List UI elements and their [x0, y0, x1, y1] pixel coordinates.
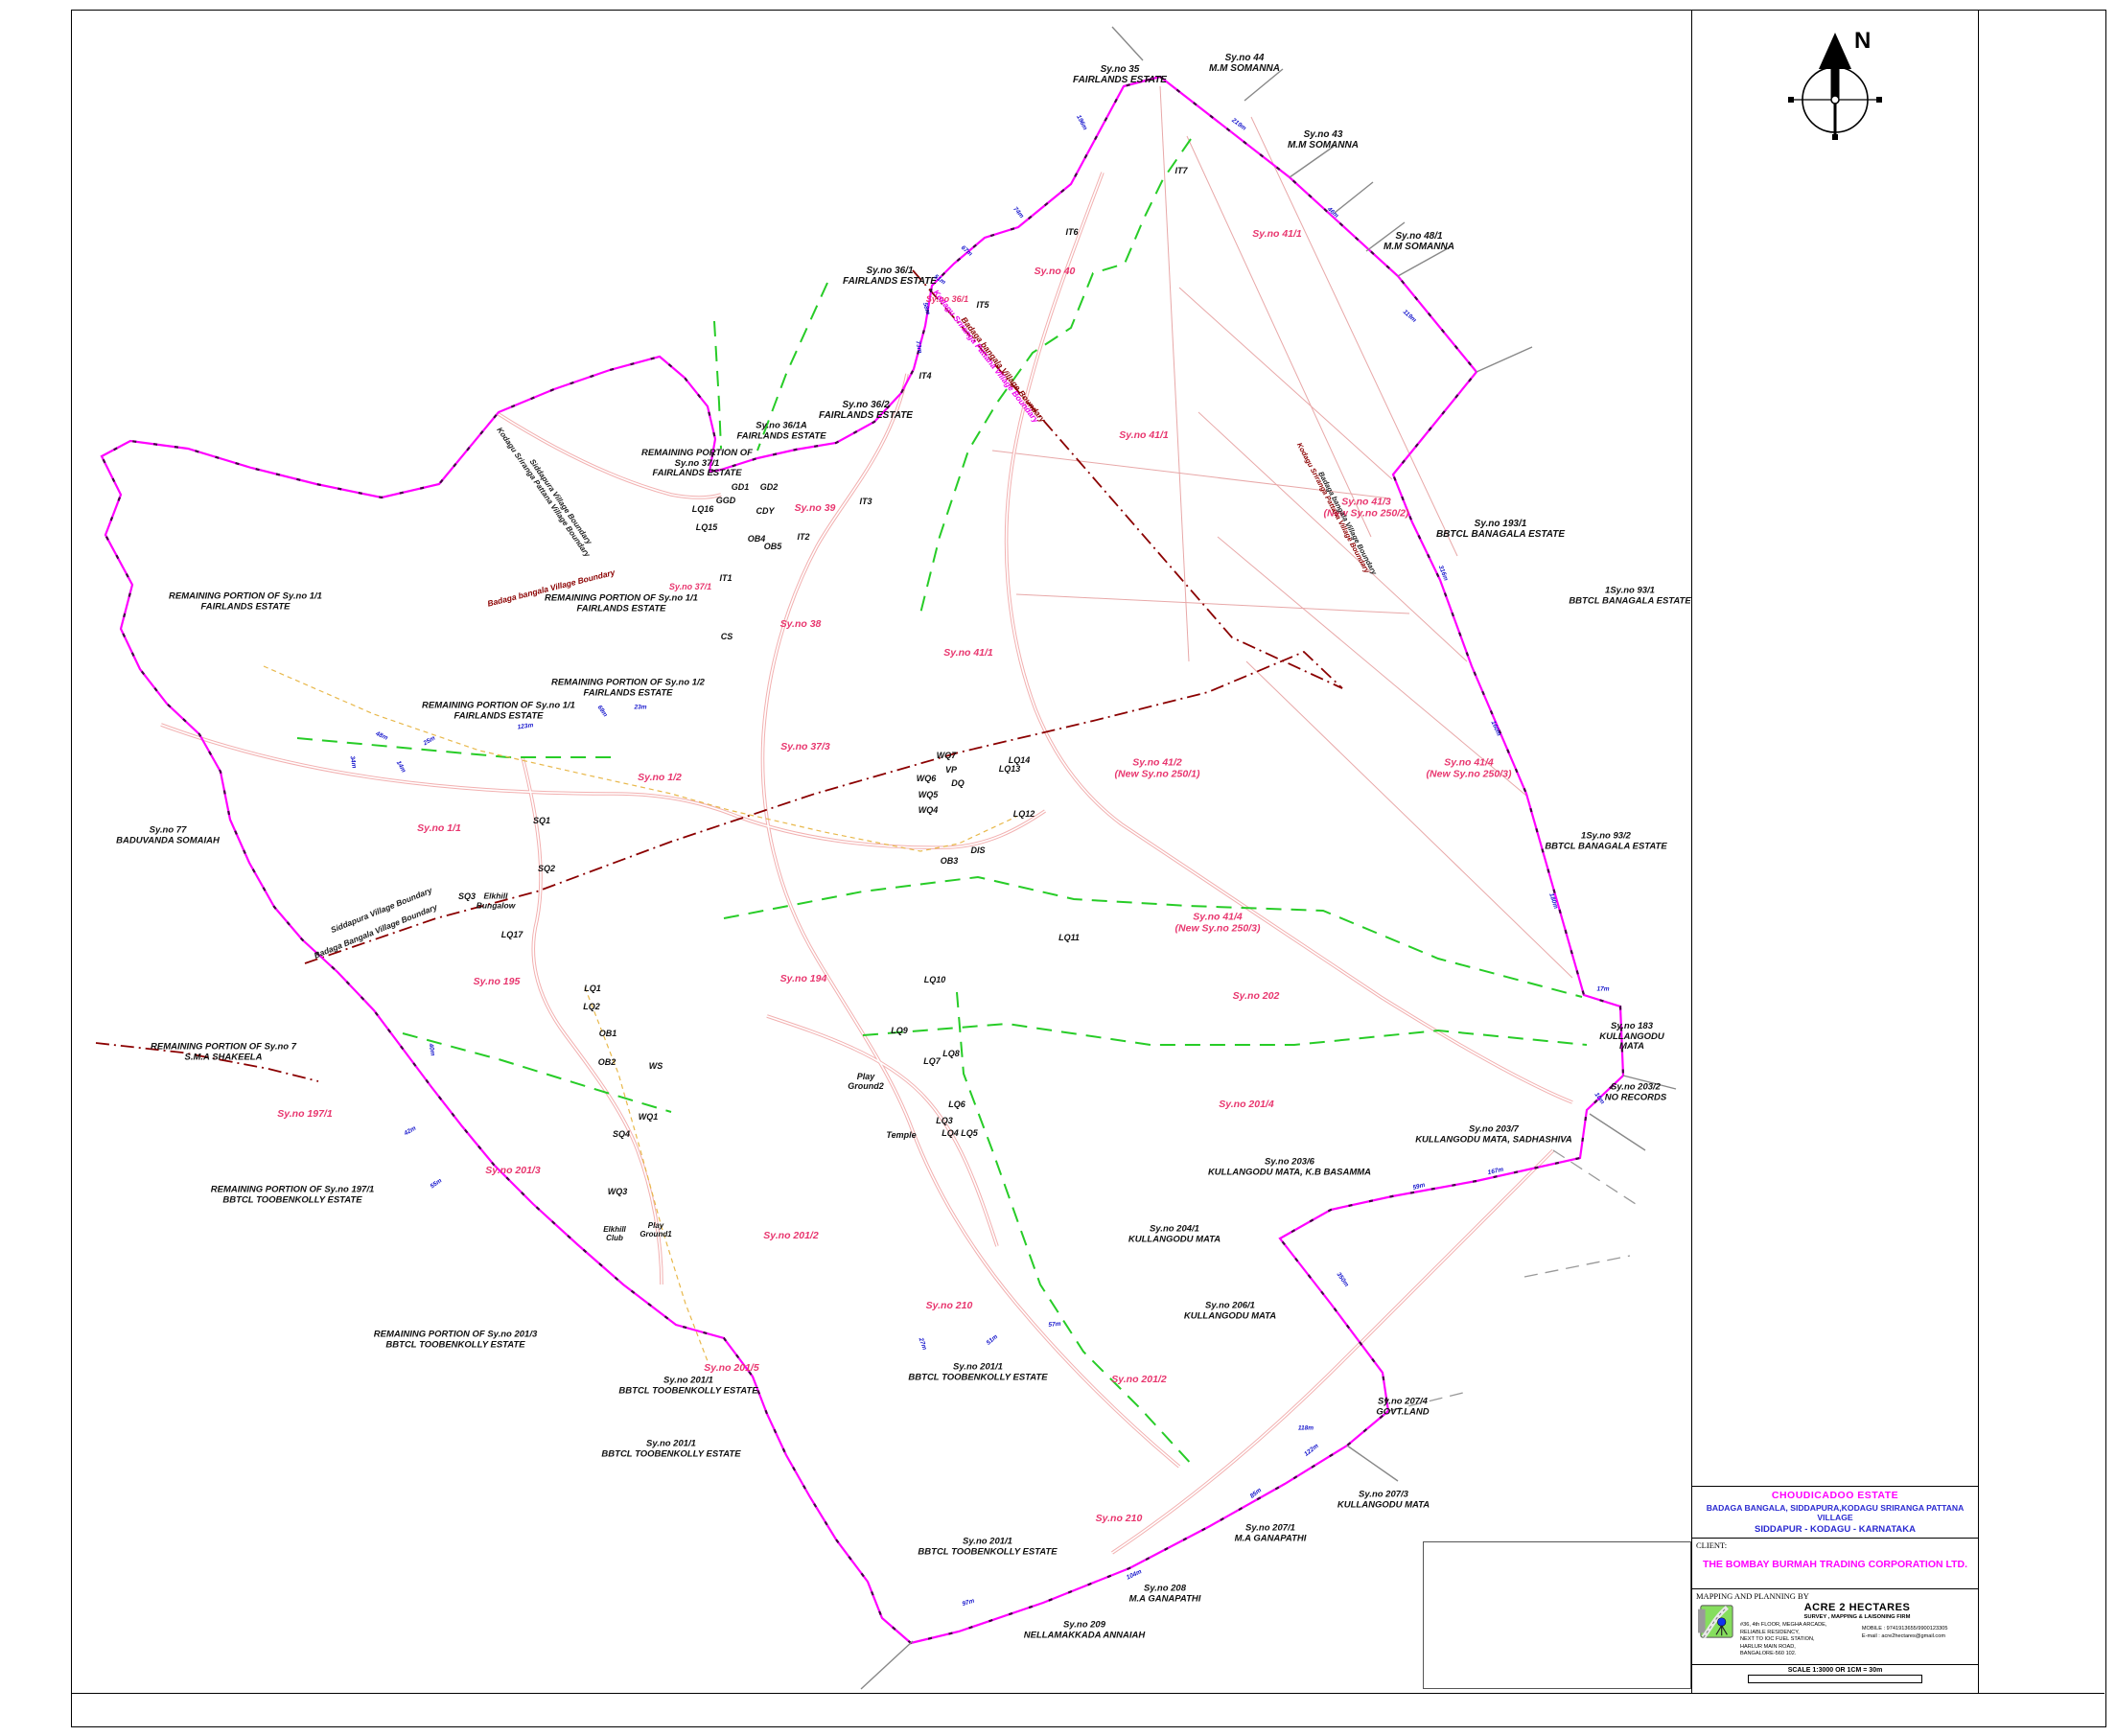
survey-map-sheet: Sy.no 35 FAIRLANDS ESTATESy.no 44 M.M SO…: [0, 0, 2116, 1736]
firm-logo: [1698, 1604, 1734, 1640]
scale-text: SCALE 1:3000 OR 1CM = 30m: [1692, 1665, 1978, 1674]
title-block: CHOUDICADOO ESTATE BADAGA BANGALA, SIDDA…: [1692, 1486, 1978, 1694]
mapping-label: MAPPING AND PLANNING BY: [1692, 1589, 1978, 1601]
estate-location: SIDDAPUR - KODAGU - KARNATAKA: [1692, 1524, 1978, 1535]
firm-contact: MOBILE : 9741913655/9900123305 E-mail : …: [1862, 1622, 1974, 1658]
svg-text:N: N: [1854, 28, 1871, 54]
legend: [1423, 1541, 1691, 1689]
survey-boundaries: [297, 139, 1587, 1467]
bottom-rule: [71, 1693, 2104, 1694]
external-survey-lines: [861, 27, 1676, 1689]
legend-symbols: [1424, 1542, 1570, 1688]
roads: [161, 173, 1572, 1553]
firm-subtitle: SURVEY , MAPPING & LAISONING FIRM: [1740, 1614, 1974, 1620]
client-label: CLIENT:: [1692, 1539, 1978, 1550]
estate-boundary: [102, 77, 1623, 1643]
village-boundaries: [96, 270, 1342, 1081]
north-arrow-icon: N: [1773, 17, 1897, 151]
client-name: THE BOMBAY BURMAH TRADING CORPORATION LT…: [1692, 1559, 1978, 1570]
right-panel: N CHOUDICADOO ESTATE BADAGA BANGALA, SID…: [1691, 10, 1979, 1693]
compass-area: N: [1692, 10, 1978, 155]
scale-bar: [1748, 1675, 1922, 1683]
legend-abbreviations: [1570, 1542, 1690, 1688]
firm-address: #36, 4th FLOOR, MEGHA ARCADE, RELIABLE R…: [1740, 1622, 1862, 1658]
firm-name: ACRE 2 HECTARES: [1740, 1602, 1974, 1613]
estate-title: CHOUDICADOO ESTATE: [1692, 1490, 1978, 1501]
estate-villages: BADAGA BANGALA, SIDDAPURA,KODAGU SRIRANG…: [1692, 1503, 1978, 1522]
parcel-lines: [992, 86, 1572, 978]
